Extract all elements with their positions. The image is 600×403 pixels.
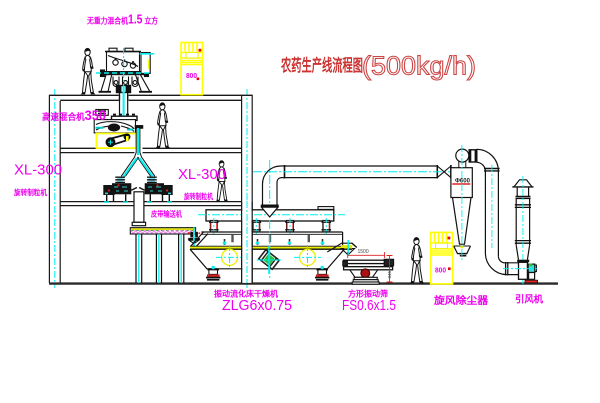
svg-text:FS0.6x1.5: FS0.6x1.5 [342,297,396,314]
svg-text:800: 800 [186,71,197,80]
svg-text:旋风除尘器: 旋风除尘器 [433,294,489,307]
svg-text:旋转制粒机: 旋转制粒机 [13,187,47,197]
svg-text:800: 800 [435,265,446,274]
svg-text:引风机: 引风机 [515,294,543,306]
svg-text:Φ600: Φ600 [455,179,471,185]
svg-text:皮带输送机: 皮带输送机 [150,210,183,219]
svg-text:345: 345 [387,270,392,278]
svg-text:XL-300: XL-300 [14,162,62,179]
svg-text:(500kg/h): (500kg/h) [362,51,476,81]
svg-text:农药生产线流程图: 农药生产线流程图 [280,55,363,75]
svg-text:XL-300: XL-300 [178,166,226,183]
svg-text:ZLG6x0.75: ZLG6x0.75 [222,297,292,314]
svg-text:旋转制粒机: 旋转制粒机 [183,191,213,201]
svg-text:1500: 1500 [358,249,369,255]
